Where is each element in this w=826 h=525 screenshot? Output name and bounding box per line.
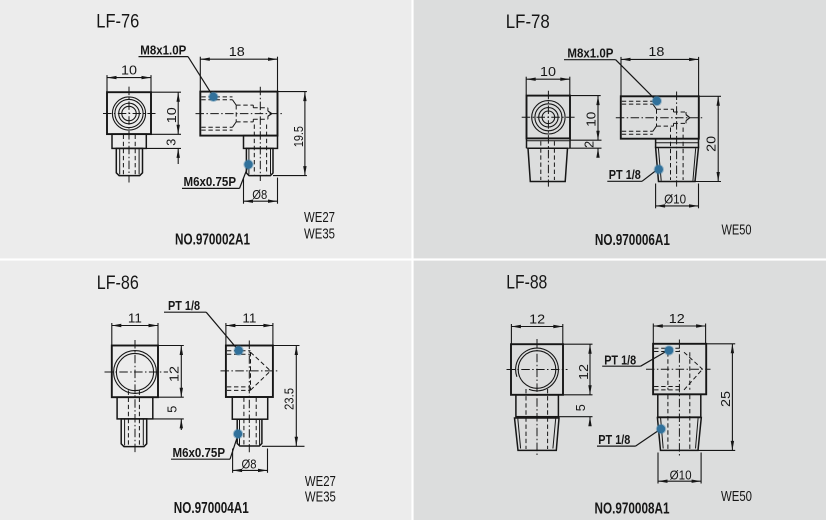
svg-text:WE50: WE50 — [722, 223, 752, 239]
svg-text:11: 11 — [242, 311, 256, 325]
svg-text:M8x1.0P: M8x1.0P — [140, 43, 186, 58]
svg-text:NO.970002A1: NO.970002A1 — [175, 231, 250, 248]
svg-text:NO.970004A1: NO.970004A1 — [174, 500, 249, 517]
svg-text:18: 18 — [229, 45, 245, 59]
svg-text:5: 5 — [166, 406, 180, 413]
svg-text:WE35: WE35 — [304, 226, 335, 242]
svg-text:PT 1/8: PT 1/8 — [609, 167, 641, 182]
svg-text:10: 10 — [540, 65, 556, 79]
svg-text:LF-88: LF-88 — [506, 271, 547, 293]
svg-text:Ø10: Ø10 — [664, 191, 686, 206]
svg-text:Ø8: Ø8 — [242, 457, 257, 472]
svg-text:10: 10 — [585, 112, 599, 127]
svg-text:NO.970008A1: NO.970008A1 — [595, 501, 670, 518]
svg-text:5: 5 — [574, 404, 588, 411]
svg-text:18: 18 — [648, 45, 664, 59]
svg-text:PT 1/8: PT 1/8 — [598, 432, 630, 447]
svg-text:20: 20 — [704, 136, 718, 152]
svg-text:WE35: WE35 — [305, 490, 336, 506]
svg-text:12: 12 — [577, 364, 591, 380]
svg-text:PT 1/8: PT 1/8 — [168, 298, 200, 313]
svg-text:WE27: WE27 — [304, 210, 335, 226]
svg-text:M8x1.0P: M8x1.0P — [567, 45, 613, 60]
svg-text:Ø8: Ø8 — [252, 187, 267, 202]
svg-text:WE27: WE27 — [305, 474, 336, 490]
svg-text:12: 12 — [669, 312, 685, 326]
svg-text:12: 12 — [167, 366, 181, 382]
svg-text:3: 3 — [164, 139, 178, 146]
svg-text:23.5: 23.5 — [283, 388, 297, 410]
svg-text:11: 11 — [128, 311, 142, 325]
svg-text:10: 10 — [165, 107, 179, 123]
svg-text:10: 10 — [121, 63, 137, 77]
svg-text:Ø10: Ø10 — [670, 467, 692, 482]
svg-text:LF-78: LF-78 — [506, 11, 550, 33]
svg-text:LF-86: LF-86 — [97, 272, 139, 294]
svg-text:25: 25 — [719, 391, 733, 407]
svg-text:12: 12 — [529, 312, 545, 326]
svg-text:NO.970006A1: NO.970006A1 — [595, 232, 670, 249]
svg-text:WE50: WE50 — [721, 489, 752, 505]
svg-text:M6x0.75P: M6x0.75P — [184, 174, 237, 189]
svg-text:19.5: 19.5 — [292, 126, 306, 147]
svg-text:PT 1/8: PT 1/8 — [604, 353, 636, 368]
svg-text:M6x0.75P: M6x0.75P — [173, 445, 226, 460]
svg-text:2: 2 — [582, 141, 596, 148]
svg-text:LF-76: LF-76 — [96, 10, 139, 32]
